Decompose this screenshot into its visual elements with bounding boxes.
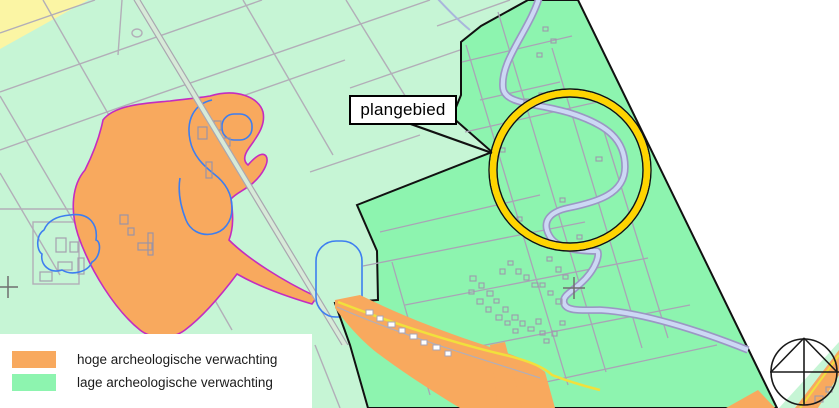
legend-label-low: lage archeologische verwachting (77, 375, 273, 390)
legend-swatch-high-icon (12, 351, 56, 368)
legend-item-low: lage archeologische verwachting (12, 374, 312, 392)
legend-label-high: hoge archeologische verwachting (77, 352, 277, 367)
archaeological-expectation-map: plangebied hoge archeologische verwachti… (0, 0, 839, 408)
legend: hoge archeologische verwachting lage arc… (0, 334, 312, 408)
legend-swatch-low-icon (12, 374, 56, 391)
legend-item-high: hoge archeologische verwachting (12, 351, 312, 369)
plangebied-label: plangebied (349, 95, 457, 125)
plangebied-label-text: plangebied (360, 100, 445, 120)
